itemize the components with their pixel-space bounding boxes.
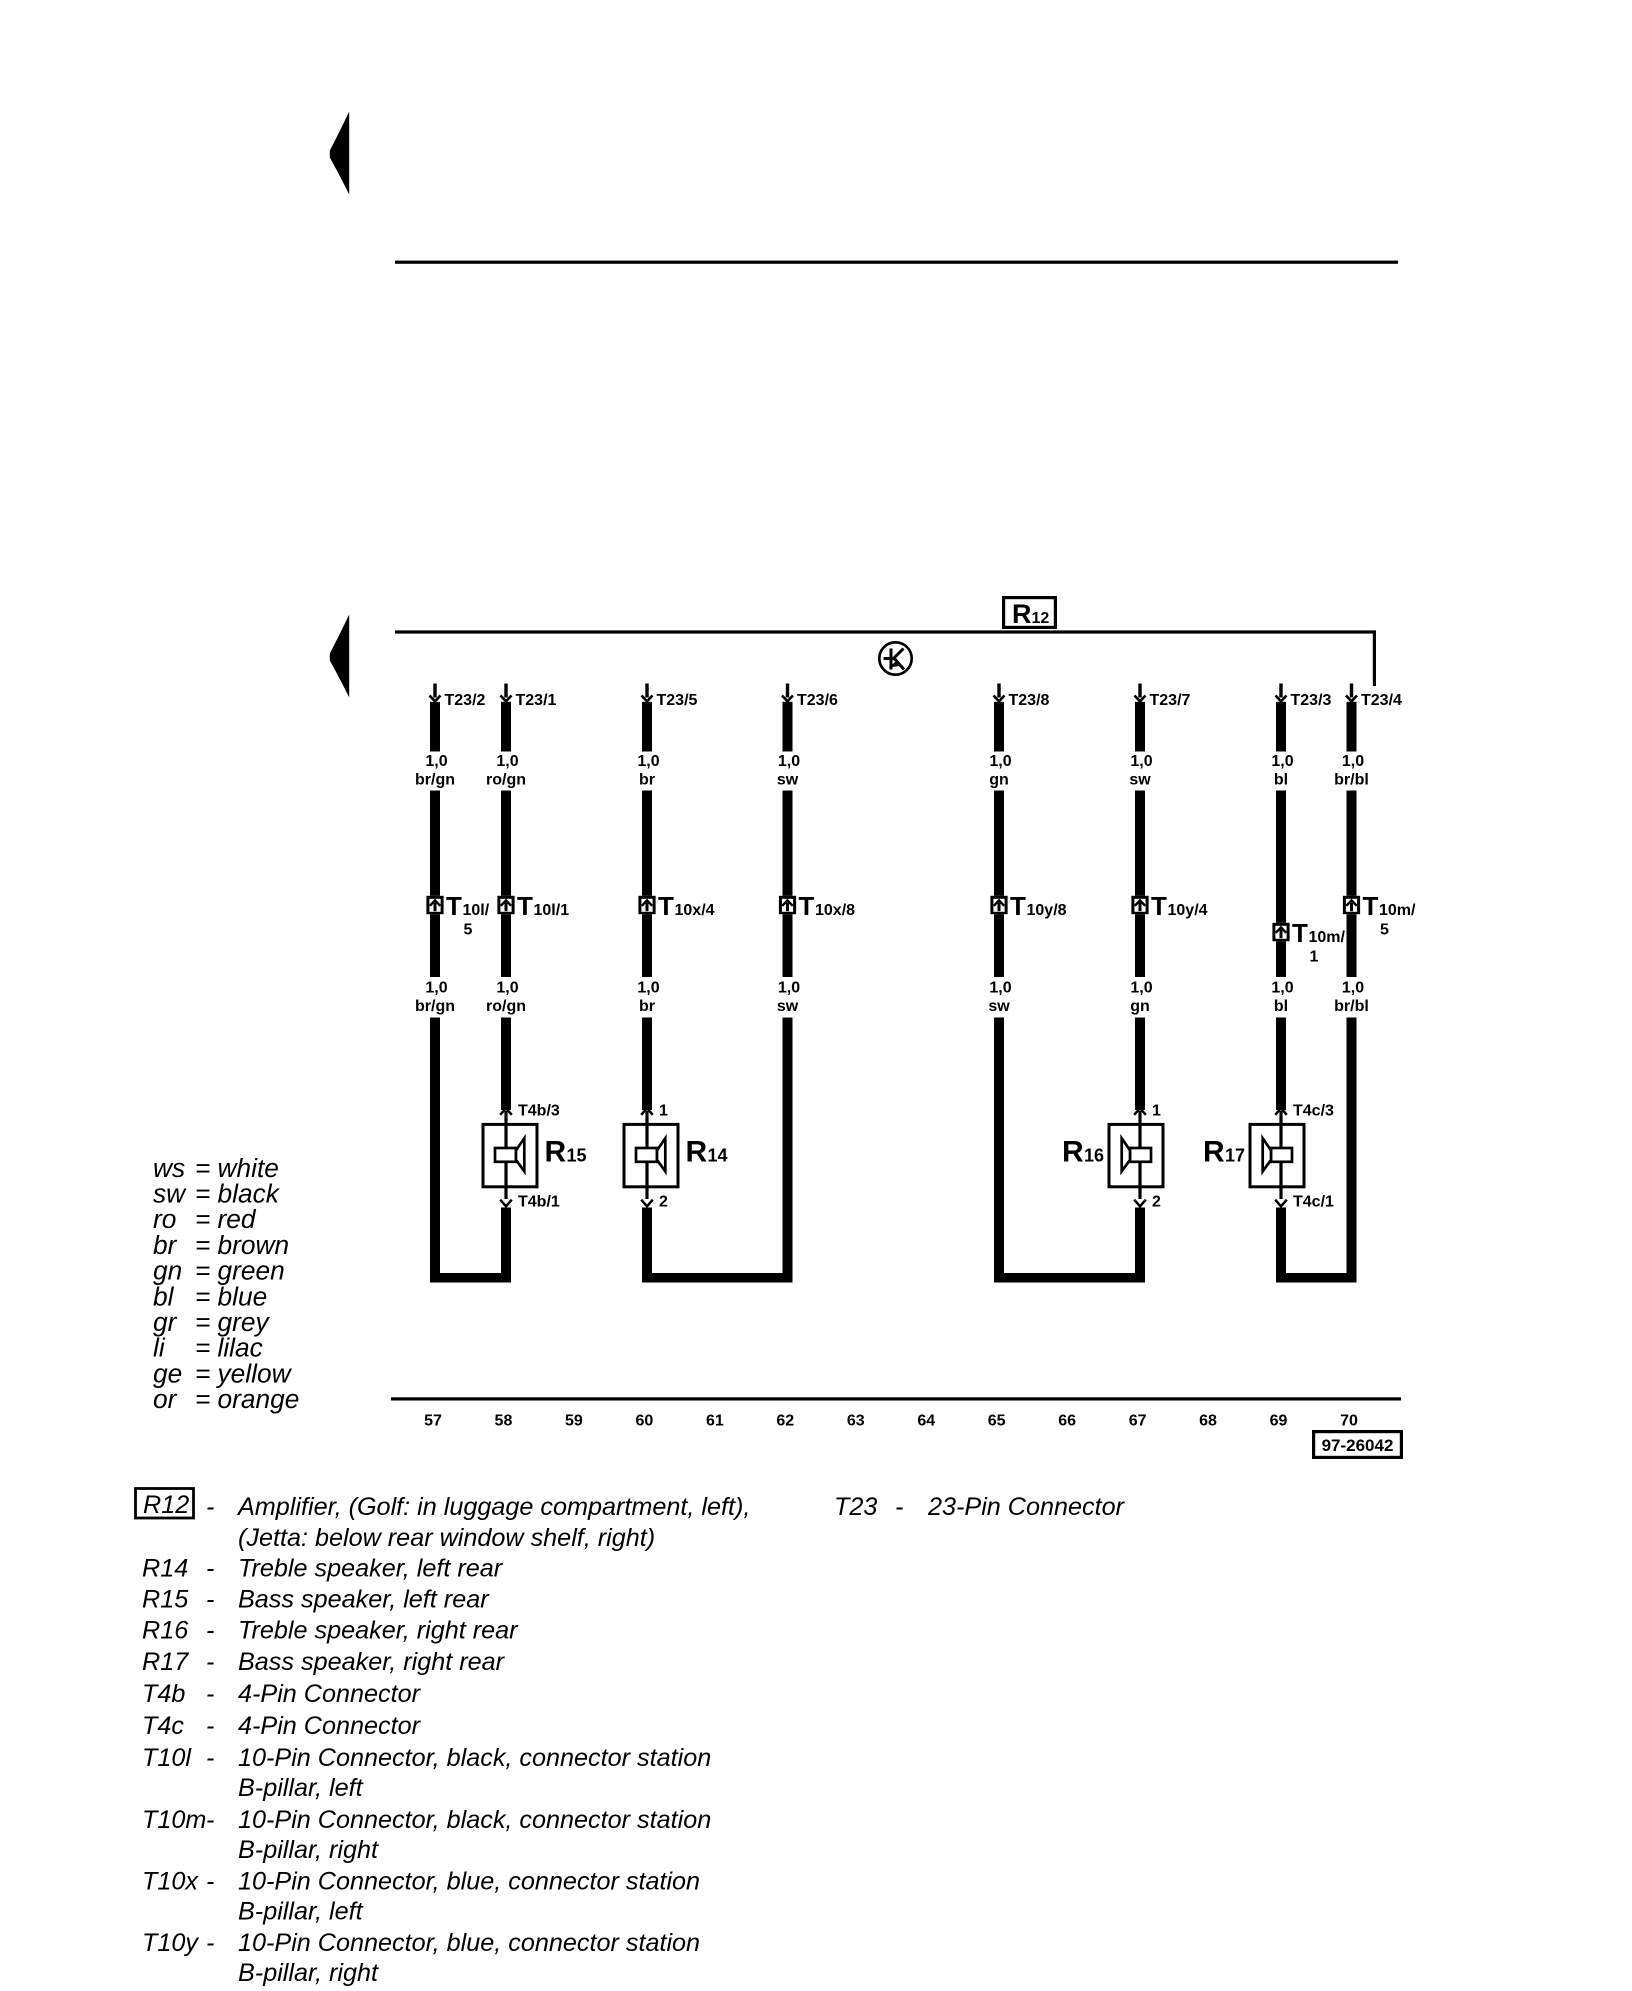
svg-text:67: 67 <box>1129 1413 1147 1430</box>
svg-text:1,0: 1,0 <box>637 753 659 770</box>
svg-text:bl: bl <box>1274 998 1288 1015</box>
svg-text:T4c/1: T4c/1 <box>1293 1194 1334 1211</box>
svg-text:gn: gn <box>989 772 1009 789</box>
svg-text:T: T <box>799 891 815 921</box>
svg-text:br: br <box>639 998 655 1015</box>
svg-text:T23/7: T23/7 <box>1150 692 1191 709</box>
svg-text:R: R <box>686 1136 708 1169</box>
svg-text:T: T <box>446 891 462 921</box>
svg-text:-: - <box>206 1929 214 1957</box>
svg-text:1,0: 1,0 <box>1271 980 1293 997</box>
svg-text:-: - <box>206 1586 214 1614</box>
svg-text:1,0: 1,0 <box>637 980 659 997</box>
svg-text:2: 2 <box>659 1194 668 1211</box>
svg-text:-: - <box>206 1680 214 1708</box>
svg-text:5: 5 <box>464 921 473 938</box>
svg-text:1,0: 1,0 <box>1342 753 1364 770</box>
svg-text:69: 69 <box>1270 1413 1288 1430</box>
svg-text:2: 2 <box>1152 1194 1161 1211</box>
svg-text:T10m: T10m <box>142 1806 206 1834</box>
svg-text:B-pillar, right: B-pillar, right <box>238 1836 379 1864</box>
svg-text:T23/4: T23/4 <box>1361 692 1402 709</box>
svg-text:-: - <box>206 1617 214 1645</box>
svg-text:16: 16 <box>1084 1146 1104 1166</box>
svg-text:1,0: 1,0 <box>496 980 518 997</box>
svg-text:sw: sw <box>1129 772 1151 789</box>
svg-text:T: T <box>658 891 674 921</box>
svg-text:-: - <box>206 1648 214 1676</box>
svg-text:1,0: 1,0 <box>1271 753 1293 770</box>
svg-text:Amplifier, (Golf: in luggage c: Amplifier, (Golf: in luggage compartment… <box>236 1493 750 1521</box>
svg-text:23-Pin Connector: 23-Pin Connector <box>927 1493 1126 1521</box>
svg-text:R12: R12 <box>143 1491 189 1519</box>
svg-text:58: 58 <box>495 1413 513 1430</box>
svg-text:T23/8: T23/8 <box>1009 692 1050 709</box>
svg-text:-: - <box>895 1493 903 1521</box>
svg-text:61: 61 <box>706 1413 724 1430</box>
svg-text:-: - <box>206 1806 214 1834</box>
svg-text:68: 68 <box>1199 1413 1217 1430</box>
svg-text:10-Pin Connector, black, conne: 10-Pin Connector, black, connector stati… <box>238 1806 711 1834</box>
svg-text:T: T <box>1151 891 1167 921</box>
svg-text:R15: R15 <box>142 1586 189 1614</box>
svg-text:T10y: T10y <box>142 1929 199 1957</box>
svg-text:-: - <box>206 1712 214 1740</box>
svg-text:T4c/3: T4c/3 <box>1293 1103 1334 1120</box>
svg-text:or: or <box>153 1384 178 1414</box>
svg-text:Bass speaker, left rear: Bass speaker, left rear <box>238 1586 490 1614</box>
svg-text:10-Pin Connector, blue, connec: 10-Pin Connector, blue, connector statio… <box>238 1929 700 1957</box>
svg-text:65: 65 <box>988 1413 1006 1430</box>
svg-text:T23: T23 <box>834 1493 877 1521</box>
svg-text:Bass speaker, right rear: Bass speaker, right rear <box>238 1648 506 1676</box>
svg-text:10m/: 10m/ <box>1309 929 1346 946</box>
svg-text:1,0: 1,0 <box>496 753 518 770</box>
svg-text:gn: gn <box>1130 998 1150 1015</box>
svg-text:br/bl: br/bl <box>1334 772 1369 789</box>
svg-text:1,0: 1,0 <box>1342 980 1364 997</box>
svg-text:10-Pin Connector, blue, connec: 10-Pin Connector, blue, connector statio… <box>238 1868 700 1896</box>
svg-text:62: 62 <box>776 1413 794 1430</box>
svg-text:10y/4: 10y/4 <box>1168 902 1208 919</box>
svg-text:T4c: T4c <box>142 1712 184 1740</box>
svg-text:R: R <box>1203 1136 1225 1169</box>
svg-text:sw: sw <box>777 998 799 1015</box>
svg-text:sw: sw <box>988 998 1010 1015</box>
svg-text:66: 66 <box>1058 1413 1076 1430</box>
svg-text:R16: R16 <box>142 1617 189 1645</box>
svg-text:1: 1 <box>1152 1103 1161 1120</box>
svg-text:12: 12 <box>1032 610 1050 627</box>
svg-text:T: T <box>517 891 533 921</box>
svg-text:br/gn: br/gn <box>415 998 455 1015</box>
svg-text:T: T <box>1363 891 1379 921</box>
svg-text:T10x: T10x <box>142 1868 199 1896</box>
svg-text:10y/8: 10y/8 <box>1027 902 1067 919</box>
svg-text:5: 5 <box>1380 921 1389 938</box>
svg-text:B-pillar, left: B-pillar, left <box>238 1774 364 1802</box>
svg-text:1,0: 1,0 <box>778 980 800 997</box>
svg-text:1,0: 1,0 <box>1130 980 1152 997</box>
svg-text:10l/: 10l/ <box>463 902 490 919</box>
svg-text:R14: R14 <box>142 1555 188 1583</box>
svg-text:T23/3: T23/3 <box>1291 692 1332 709</box>
svg-text:1: 1 <box>1310 948 1319 965</box>
svg-text:1,0: 1,0 <box>1130 753 1152 770</box>
svg-text:15: 15 <box>567 1146 587 1166</box>
svg-text:=: = <box>195 1384 210 1414</box>
svg-text:R: R <box>1062 1136 1084 1169</box>
svg-text:59: 59 <box>565 1413 583 1430</box>
svg-text:1,0: 1,0 <box>425 753 447 770</box>
svg-text:70: 70 <box>1340 1413 1358 1430</box>
svg-text:-: - <box>206 1868 214 1896</box>
svg-text:R17: R17 <box>142 1648 189 1676</box>
svg-text:T10l: T10l <box>142 1744 192 1772</box>
svg-text:B-pillar, left: B-pillar, left <box>238 1898 364 1926</box>
svg-text:63: 63 <box>847 1413 865 1430</box>
svg-text:br: br <box>639 772 655 789</box>
svg-text:64: 64 <box>917 1413 935 1430</box>
svg-text:T23/2: T23/2 <box>445 692 486 709</box>
svg-text:-: - <box>206 1744 214 1772</box>
svg-text:1,0: 1,0 <box>778 753 800 770</box>
svg-text:R: R <box>1012 599 1032 629</box>
svg-text:14: 14 <box>708 1146 728 1166</box>
svg-text:1,0: 1,0 <box>425 980 447 997</box>
svg-text:1,0: 1,0 <box>989 753 1011 770</box>
svg-text:T: T <box>1292 918 1308 948</box>
svg-text:10x/8: 10x/8 <box>815 902 855 919</box>
svg-text:T: T <box>1010 891 1026 921</box>
svg-text:1,0: 1,0 <box>989 980 1011 997</box>
svg-text:br/gn: br/gn <box>415 772 455 789</box>
svg-text:-: - <box>206 1555 214 1583</box>
svg-text:T4b/1: T4b/1 <box>518 1194 560 1211</box>
svg-text:Treble speaker, left rear: Treble speaker, left rear <box>238 1555 504 1583</box>
svg-text:57: 57 <box>424 1413 442 1430</box>
svg-text:R: R <box>545 1136 567 1169</box>
svg-text:10l/1: 10l/1 <box>534 902 570 919</box>
svg-text:Treble speaker, right rear: Treble speaker, right rear <box>238 1617 519 1645</box>
svg-text:T4b/3: T4b/3 <box>518 1103 560 1120</box>
svg-text:T23/1: T23/1 <box>516 692 557 709</box>
svg-text:sw: sw <box>777 772 799 789</box>
svg-text:10x/4: 10x/4 <box>675 902 715 919</box>
svg-text:-: - <box>206 1493 214 1521</box>
svg-text:60: 60 <box>635 1413 653 1430</box>
svg-text:17: 17 <box>1225 1146 1245 1166</box>
svg-text:97-26042: 97-26042 <box>1322 1436 1394 1455</box>
svg-text:4-Pin Connector: 4-Pin Connector <box>238 1712 422 1740</box>
svg-text:bl: bl <box>1274 772 1288 789</box>
svg-text:T23/6: T23/6 <box>797 692 838 709</box>
svg-text:B-pillar, right: B-pillar, right <box>238 1959 379 1986</box>
svg-text:(Jetta: below rear window shel: (Jetta: below rear window shelf, right) <box>238 1524 655 1552</box>
svg-text:T4b: T4b <box>142 1680 185 1708</box>
svg-text:4-Pin Connector: 4-Pin Connector <box>238 1680 422 1708</box>
svg-text:T23/5: T23/5 <box>657 692 698 709</box>
svg-text:ro/gn: ro/gn <box>486 998 526 1015</box>
svg-text:br/bl: br/bl <box>1334 998 1369 1015</box>
svg-text:ro/gn: ro/gn <box>486 772 526 789</box>
svg-text:1: 1 <box>659 1103 668 1120</box>
svg-text:10-Pin Connector, black, conne: 10-Pin Connector, black, connector stati… <box>238 1744 711 1772</box>
svg-text:orange: orange <box>218 1384 300 1414</box>
svg-text:10m/: 10m/ <box>1379 902 1416 919</box>
